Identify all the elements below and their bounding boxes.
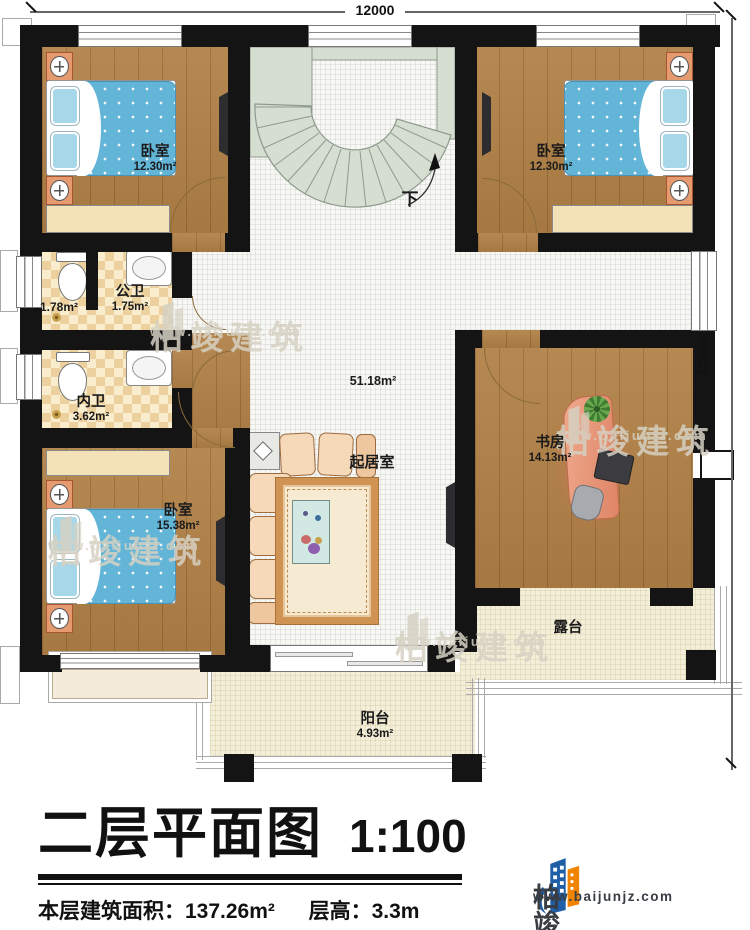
room-label-inner-bath: 内卫3.62m²	[50, 394, 132, 425]
wardrobe	[552, 205, 693, 233]
room-label-living-area: 51.18m²	[323, 374, 423, 389]
window-sill	[0, 646, 20, 704]
room-label-study: 书房14.13m²	[500, 435, 600, 466]
drawing-scale: 1:100	[349, 809, 467, 863]
window	[308, 25, 412, 47]
wall	[455, 233, 478, 252]
side-table	[246, 432, 280, 470]
balcony-railing	[472, 678, 486, 758]
room-label-living-name: 起居室	[322, 454, 422, 472]
wall	[200, 655, 225, 672]
floor-area-value: 137.26m²	[185, 900, 275, 923]
wall	[20, 428, 172, 448]
bay-window	[60, 653, 200, 669]
wall	[172, 252, 192, 298]
lamp-icon	[670, 180, 689, 201]
pillow	[661, 87, 689, 125]
lamp-icon	[50, 56, 69, 77]
wall	[225, 448, 250, 672]
terrace-pillar	[686, 650, 716, 680]
room-label-bedroom-tr: 卧室12.30m²	[501, 144, 601, 175]
balcony-pillar	[452, 754, 482, 782]
company-logo: 柏竣建筑 www.baijunjz.com	[533, 854, 583, 916]
window	[78, 25, 182, 47]
dimension-right-value: 13000	[695, 321, 711, 391]
duct-box	[700, 450, 734, 480]
floor-drain	[52, 313, 61, 322]
floor-height-label: 层高：	[309, 900, 372, 923]
floor-height-value: 3.3m	[372, 900, 420, 923]
tv	[446, 482, 455, 548]
nightstand	[46, 604, 73, 633]
wall	[20, 25, 42, 672]
nightstand	[46, 480, 73, 509]
wardrobe	[46, 450, 170, 476]
room-label-bedroom-bl: 卧室15.38m²	[128, 503, 228, 534]
nightstand	[46, 176, 73, 205]
lamp-icon	[50, 608, 69, 629]
pillow	[51, 132, 79, 170]
dimension-line-right	[731, 18, 733, 770]
floor-area-label: 本层建筑面积：	[38, 900, 185, 923]
sink	[126, 250, 172, 286]
wall	[225, 233, 250, 252]
wall	[20, 233, 172, 252]
company-url: www.baijunjz.com	[533, 889, 674, 904]
wall	[455, 330, 475, 588]
door-patch	[520, 588, 650, 606]
dimension-top-value: 12000	[345, 2, 405, 18]
nightstand	[666, 176, 693, 205]
window	[536, 25, 640, 47]
plant-icon	[584, 396, 610, 422]
nightstand	[46, 52, 73, 81]
pillow	[51, 515, 79, 553]
table-lamp-icon	[253, 441, 273, 461]
floor-info: 本层建筑面积：137.26m² 层高：3.3m	[38, 895, 419, 925]
window	[16, 354, 42, 400]
wall	[538, 233, 693, 252]
lamp-icon	[50, 484, 69, 505]
wall	[455, 25, 477, 233]
room-label-toilet-compartment: 1.78m²	[28, 300, 90, 314]
wall	[475, 330, 482, 348]
drawing-title: 二层平面图	[38, 806, 323, 861]
title-underline-thin	[38, 883, 462, 885]
title-underline	[38, 874, 462, 880]
sliding-door	[270, 645, 428, 672]
pillow	[51, 560, 79, 598]
sink-basin	[132, 256, 166, 280]
floorplan-page: 12000 13000 柏竣建筑 www.baijunjz.com 柏竣建筑 w…	[0, 0, 750, 930]
door-patch	[172, 233, 225, 252]
bay-window-sill	[52, 669, 208, 699]
lamp-icon	[670, 56, 689, 77]
room-label-public-bath: 公卫1.75m²	[94, 284, 166, 315]
corridor-floor	[455, 252, 693, 330]
wall	[20, 655, 62, 672]
lamp-icon	[50, 180, 69, 201]
wall	[42, 330, 192, 350]
wall	[228, 25, 250, 233]
sink-basin	[132, 356, 166, 380]
pillow	[51, 87, 79, 125]
terrace-railing	[466, 682, 742, 698]
stairs-down-label: 下	[394, 190, 426, 210]
door-patch	[478, 233, 538, 252]
title-block: 二层平面图 1:100 本层建筑面积：137.26m² 层高：3.3m 柏竣建筑…	[0, 800, 750, 930]
room-label-balcony: 阳台4.93m²	[325, 711, 425, 742]
room-label-bedroom-tl: 卧室12.30m²	[105, 144, 205, 175]
window	[691, 251, 717, 331]
wall	[250, 645, 272, 672]
room-label-terrace: 露台	[518, 620, 618, 637]
wall	[650, 588, 693, 606]
door-patch	[172, 298, 192, 330]
tv	[219, 92, 228, 156]
wall	[428, 645, 455, 672]
wall	[455, 588, 477, 652]
pillow	[661, 132, 689, 170]
wall	[540, 330, 693, 348]
tv	[482, 92, 491, 156]
door-patch	[172, 350, 192, 390]
wall	[693, 478, 715, 588]
door-patch	[482, 330, 540, 348]
wardrobe	[46, 205, 170, 233]
floorplan-drawing: 12000 13000 柏竣建筑 www.baijunjz.com 柏竣建筑 w…	[0, 0, 750, 800]
sink	[126, 350, 172, 386]
coffee-table	[292, 500, 330, 564]
wall	[233, 428, 250, 448]
nightstand	[666, 52, 693, 81]
balcony-pillar	[224, 754, 254, 782]
